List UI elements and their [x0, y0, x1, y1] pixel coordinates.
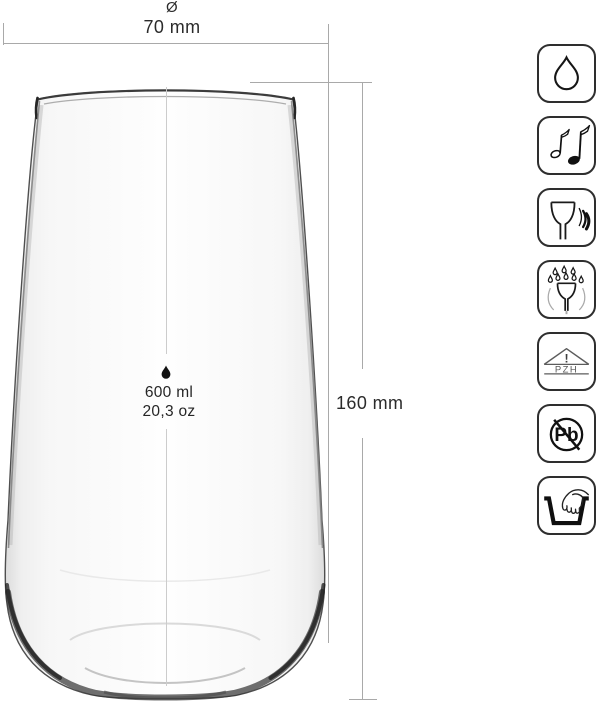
volume-drop-icon: [160, 365, 172, 380]
diameter-label: 70 mm: [122, 17, 222, 38]
diameter-dimension-line: [3, 43, 329, 44]
product-spec-image: Ø 70 mm 160 mm 600 ml 20,3 oz: [0, 0, 600, 705]
capacity-ml-label: 600 ml: [109, 384, 229, 402]
music-notes-icon: [539, 117, 594, 175]
hand-wash-icon: [539, 477, 594, 535]
feature-badge-pzh: ! PZH: [537, 332, 596, 391]
feature-badge-resonance: [537, 188, 596, 247]
glass-illustration: [0, 0, 600, 705]
pzh-certificate-icon: ! PZH: [539, 333, 594, 391]
feature-badge-lead-free: Pb: [537, 404, 596, 463]
height-dimension-line-upper: [362, 83, 363, 369]
pzh-exclamation: !: [564, 351, 568, 365]
feature-badge-dishwasher-safe: [537, 260, 596, 319]
dishwasher-safe-icon: [539, 261, 594, 319]
glass-center-line-upper: [166, 87, 167, 354]
height-dimension-line-lower: [362, 438, 363, 700]
feature-badge-hand-wash: [537, 476, 596, 535]
diameter-extension-right: [328, 24, 329, 643]
glass-resonance-icon: [539, 189, 594, 247]
feature-badge-crystal-sound: [537, 116, 596, 175]
water-drop-icon: [539, 45, 594, 103]
diameter-symbol: Ø: [122, 0, 222, 16]
feature-badge-water-drop: [537, 44, 596, 103]
capacity-oz-label: 20,3 oz: [109, 403, 229, 421]
diameter-extension-left: [3, 23, 4, 45]
pzh-label: PZH: [555, 364, 578, 375]
height-extension-top: [250, 82, 372, 83]
height-label: 160 mm: [336, 393, 403, 414]
height-extension-bottom: [349, 699, 377, 700]
glass-center-line-lower: [166, 429, 167, 686]
lead-free-icon: Pb: [539, 405, 594, 463]
